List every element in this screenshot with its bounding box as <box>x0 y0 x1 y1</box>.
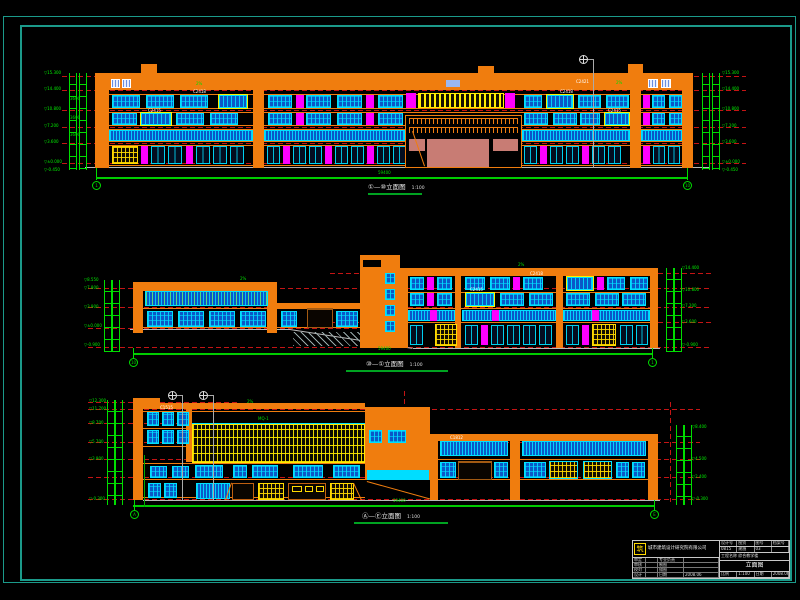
window <box>172 466 189 478</box>
vertical-line <box>144 455 145 507</box>
window <box>177 430 189 444</box>
level-marker: ▽-0.450 <box>44 168 60 172</box>
magenta-accent-panel <box>492 310 499 321</box>
annotation: 2% <box>240 277 246 281</box>
elevation-3-underline <box>354 522 448 524</box>
line <box>143 479 365 480</box>
yellow-door <box>258 483 284 500</box>
tb-cell: 0815 <box>720 547 737 552</box>
entry-door <box>653 146 665 164</box>
annotation: C1812 <box>450 436 463 440</box>
dimension-line <box>684 425 692 505</box>
yellow-framed-window <box>546 94 574 109</box>
level-marker: ▽8.550 <box>84 278 99 282</box>
tb-cell: 档案号 <box>772 541 789 546</box>
annotation: C2418 <box>560 90 573 94</box>
level-marker: ▽8.400 <box>692 425 707 429</box>
window <box>388 430 406 443</box>
line <box>95 165 693 166</box>
entry-door <box>168 146 182 164</box>
entrance-wall <box>427 139 489 167</box>
entry-door <box>668 146 680 164</box>
tb-cell: 日期 <box>658 573 684 578</box>
level-dash-line <box>62 127 746 128</box>
curtain-wall <box>192 424 365 463</box>
window <box>669 113 682 125</box>
window <box>176 113 204 125</box>
level-marker: ▽14.400 <box>44 87 61 91</box>
vertical-line <box>687 168 688 180</box>
axis-bubble: E <box>650 510 659 519</box>
level-marker: ▽10.800 <box>722 107 739 111</box>
window <box>440 462 456 478</box>
entry-door <box>566 325 579 345</box>
entry-door <box>566 146 579 164</box>
pilaster <box>648 440 658 500</box>
ground-line <box>413 348 660 349</box>
window <box>112 95 140 108</box>
ribbon-window <box>522 441 646 456</box>
dimension-line <box>104 280 112 352</box>
tb-cell: 设计 <box>633 573 646 578</box>
line <box>95 141 693 142</box>
magenta-accent-panel <box>540 146 547 164</box>
window <box>147 412 159 426</box>
roof-vent <box>446 80 460 87</box>
level-marker: ▽±0.000 <box>722 160 740 164</box>
ribbon-window <box>145 291 268 306</box>
level-marker: ▽8.700 <box>89 421 104 425</box>
entry-door <box>523 325 536 345</box>
line <box>430 459 658 460</box>
dimension-line <box>676 425 684 505</box>
window <box>333 465 360 478</box>
window <box>240 311 266 327</box>
window <box>147 311 173 327</box>
magenta-accent-panel <box>430 310 437 321</box>
yellow-framed-window <box>465 292 495 307</box>
window <box>378 113 403 125</box>
window <box>281 311 297 327</box>
annotation: 3600 <box>70 97 80 101</box>
roof-vent <box>111 79 120 88</box>
vertical-line <box>213 395 214 500</box>
louver-band <box>418 93 504 108</box>
tb-cell: 03 <box>755 547 772 552</box>
ribbon-window <box>264 130 405 141</box>
tb-cell: 比例 <box>720 572 737 577</box>
tb-cell: 建施 <box>737 547 754 552</box>
ground-line <box>130 329 290 330</box>
window <box>500 293 524 306</box>
window <box>669 95 682 108</box>
level-marker: ▽7.200 <box>682 304 697 308</box>
window <box>524 95 542 108</box>
wall-panel <box>493 139 518 151</box>
ribbon-window <box>641 130 682 141</box>
magenta-accent-panel <box>582 146 589 164</box>
yellow-door <box>435 324 457 346</box>
level-dash-line <box>62 143 746 144</box>
level-marker: ▽5.700 <box>89 440 104 444</box>
parapet-band <box>133 282 277 290</box>
window <box>607 277 625 290</box>
pilaster <box>510 440 520 500</box>
window <box>632 462 645 478</box>
line <box>133 308 277 309</box>
magenta-accent-panel <box>427 277 434 290</box>
entry-door <box>151 146 165 164</box>
level-marker: ▽10.800 <box>44 107 61 111</box>
yellow-framed-window <box>604 112 630 126</box>
level-marker: ▽10.800 <box>682 288 699 292</box>
annotation: C2421 <box>576 80 589 84</box>
company-logo: 筑 <box>634 543 646 555</box>
yellow-door <box>592 324 616 346</box>
dimension-line <box>115 400 123 505</box>
dimension-line <box>702 73 710 170</box>
annotation: C2415 <box>148 109 161 113</box>
wall-panel <box>628 64 643 73</box>
vertical-line <box>182 395 183 500</box>
window <box>268 95 292 108</box>
entry-door <box>267 146 280 164</box>
magenta-accent-panel <box>513 277 520 290</box>
elevation-2-label: ⑩—①立面图 <box>366 360 404 368</box>
level-marker: ▽14.400 <box>682 266 699 270</box>
window <box>566 293 590 306</box>
elevation-1-scale: 1:100 <box>412 186 425 191</box>
tb-cell <box>646 573 658 578</box>
window <box>410 293 424 306</box>
window <box>630 277 648 290</box>
gate-opening <box>458 461 492 480</box>
wall-panel <box>363 260 381 267</box>
magenta-accent-panel <box>592 310 599 321</box>
level-marker: ▽3.600 <box>44 140 59 144</box>
window <box>490 277 510 290</box>
axis-marker <box>168 391 177 400</box>
axis-bubble: 10 <box>683 181 692 190</box>
level-marker: ▽3.600 <box>722 140 737 144</box>
entry-door <box>620 325 633 345</box>
elevation-1-label: ①—⑩立面图 <box>368 183 406 191</box>
window <box>378 95 403 108</box>
entry-door <box>539 325 552 345</box>
window <box>385 289 395 300</box>
pilaster <box>650 276 658 348</box>
window <box>306 95 331 108</box>
annotation: 59400 <box>393 499 406 503</box>
window <box>252 465 278 478</box>
window <box>652 95 665 108</box>
level-marker: ▽-0.300 <box>692 497 708 501</box>
canopy <box>367 470 429 480</box>
title-block-left: 筑 城市建筑设计研究院有限公司 审定 专业负责 审核 制图 校对 描图 设计 日… <box>633 541 720 578</box>
annotation: 59400 <box>378 347 391 351</box>
ribbon-window <box>440 441 508 456</box>
magenta-accent-panel <box>427 293 434 306</box>
window <box>622 293 646 306</box>
yellow-framed-window <box>566 276 594 291</box>
dimension-line <box>712 73 720 170</box>
annotation: C2418 <box>530 272 543 276</box>
annotation: C2418 <box>193 90 206 94</box>
window <box>595 293 619 306</box>
magenta-accent-panel <box>296 95 304 108</box>
window <box>606 95 629 108</box>
annotation: 2% <box>196 82 202 86</box>
elevation-3-scale: 1:100 <box>407 515 420 520</box>
window <box>523 277 543 290</box>
window <box>437 277 452 290</box>
axis-line <box>133 505 655 507</box>
level-marker: ▽7.200 <box>44 124 59 128</box>
roof-vent <box>122 79 131 88</box>
entry-door <box>335 146 348 164</box>
parapet-band <box>95 73 693 90</box>
level-marker: ▽-0.450 <box>722 168 738 172</box>
wall-panel <box>141 64 157 73</box>
magenta-accent-panel <box>406 93 416 108</box>
magenta-accent-panel <box>643 95 650 108</box>
level-marker: ▽7.800 <box>84 286 99 290</box>
magenta-accent-panel <box>366 113 374 125</box>
entry-door <box>608 146 621 164</box>
magenta-accent-panel <box>186 146 193 164</box>
axis-line <box>133 353 652 355</box>
window <box>195 465 223 478</box>
drawing-title: 立面图 <box>720 561 789 572</box>
entry-door <box>465 325 478 345</box>
vertical-line <box>134 500 135 510</box>
tb-cell: 1:100 <box>737 572 754 577</box>
magenta-accent-panel <box>283 146 290 164</box>
entry-door <box>507 325 520 345</box>
entry-door <box>550 146 563 164</box>
level-dash-line <box>62 110 746 111</box>
roof-vent <box>661 79 671 88</box>
annotation: 2% <box>247 400 253 404</box>
window <box>178 311 204 327</box>
entry-door <box>230 146 244 164</box>
dimension-line <box>107 400 115 505</box>
level-marker: ▽12.300 <box>89 399 106 403</box>
title-block: 筑 城市建筑设计研究院有限公司 审定 专业负责 审核 制图 校对 描图 设计 日… <box>632 540 790 579</box>
project-name-row: 工程名称 综合教学楼 <box>720 553 789 561</box>
window <box>524 462 546 478</box>
window <box>268 113 292 125</box>
line <box>133 327 277 328</box>
magenta-accent-panel <box>141 146 148 164</box>
window <box>162 412 174 426</box>
window <box>209 311 235 327</box>
tb-cell: 2008.06 <box>772 572 789 577</box>
annotation: 59400 <box>378 171 391 175</box>
pilaster <box>133 409 143 500</box>
line <box>95 108 693 109</box>
entry-door <box>377 146 390 164</box>
signature-table: 审定 专业负责 审核 制图 校对 描图 设计 日期 2008.06 <box>633 558 719 578</box>
window <box>148 483 161 498</box>
yellow-grid-window <box>583 461 612 479</box>
entry-door <box>213 146 227 164</box>
yellow-door <box>112 146 138 164</box>
wall-panel <box>316 486 324 492</box>
entry-door <box>491 325 504 345</box>
tb-cell: 图别 <box>737 541 754 546</box>
window <box>337 113 362 125</box>
axis-marker <box>199 391 208 400</box>
entry-door <box>309 146 322 164</box>
level-marker: ▽-0.900 <box>84 343 100 347</box>
vertical-line <box>654 500 655 510</box>
vertical-line <box>133 348 134 358</box>
magenta-accent-panel <box>505 93 515 108</box>
entry-door <box>524 146 537 164</box>
yellow-framed-window <box>218 94 248 109</box>
window <box>112 113 137 125</box>
window <box>162 430 174 444</box>
dimension-line <box>112 280 120 352</box>
entry-door <box>636 325 648 345</box>
window <box>385 321 395 332</box>
window <box>524 113 548 125</box>
window <box>410 277 424 290</box>
line <box>400 308 658 309</box>
axis-marker <box>579 55 588 64</box>
window <box>616 462 629 478</box>
elevation-2-underline <box>346 370 448 372</box>
level-marker: ▽3.600 <box>682 320 697 324</box>
window <box>146 95 174 108</box>
level-marker: ▽-0.300 <box>89 497 105 501</box>
vertical-line <box>652 348 653 358</box>
line <box>143 463 365 464</box>
window <box>652 113 665 125</box>
window <box>180 95 208 108</box>
window <box>580 113 600 125</box>
wall-panel <box>305 486 313 492</box>
yellow-door <box>330 483 354 500</box>
window <box>336 311 358 327</box>
window <box>293 465 323 478</box>
axis-bubble: 10 <box>129 358 138 367</box>
level-marker: ▽7.200 <box>722 124 737 128</box>
tb-cell: 2008.06 <box>684 573 719 578</box>
magenta-accent-panel <box>296 113 304 125</box>
ribbon-window <box>563 310 650 321</box>
level-marker: ▽15.300 <box>44 71 61 75</box>
magenta-accent-panel <box>643 113 650 125</box>
title-block-right: 设计号 图别 图号 档案号 0815 建施 03 工程名称 综合教学楼 立面图 … <box>720 541 789 578</box>
tb-cell: 图号 <box>755 541 772 546</box>
window <box>337 95 362 108</box>
annotation: C1515 <box>160 406 173 410</box>
line <box>400 322 658 323</box>
gate-opening <box>307 308 333 328</box>
storefront <box>232 483 254 500</box>
magenta-accent-panel <box>597 277 604 290</box>
window <box>385 273 395 284</box>
dimension-line <box>666 268 674 352</box>
level-marker: ▽3.900 <box>89 457 104 461</box>
ground-line <box>85 167 710 168</box>
yellow-framed-window <box>140 112 172 126</box>
annotation: C2415 <box>608 109 621 113</box>
window <box>578 95 601 108</box>
magenta-accent-panel <box>582 325 589 345</box>
vertical-dash-line <box>670 402 671 502</box>
annotation: 3600 <box>70 133 80 137</box>
tb-bottom-row: 比例 1:100 日期 2008.06 <box>720 572 789 578</box>
elevation-3-title: Ⓐ—Ⓔ立面图1:100 <box>362 513 420 521</box>
dimension-line <box>69 73 77 170</box>
elevation-1-underline <box>368 193 422 195</box>
window <box>437 293 452 306</box>
dimension-line <box>674 268 682 352</box>
window <box>369 430 382 443</box>
magenta-accent-panel <box>325 146 332 164</box>
dimension-line <box>79 73 87 170</box>
annotation: C2415 <box>470 288 483 292</box>
level-marker: ▽±0.000 <box>84 324 102 328</box>
elevation-1-title: ①—⑩立面图1:100 <box>368 184 425 192</box>
window <box>177 412 189 426</box>
window <box>553 113 577 125</box>
entry-door <box>196 146 210 164</box>
elevation-3-label: Ⓐ—Ⓔ立面图 <box>362 512 401 520</box>
roof-vent <box>648 79 658 88</box>
pilaster <box>430 440 438 500</box>
axis-bubble: 1 <box>648 358 657 367</box>
level-marker: ▽2.400 <box>692 475 707 479</box>
window <box>494 462 508 478</box>
window <box>385 305 395 316</box>
window <box>210 113 238 125</box>
railing <box>409 118 518 124</box>
window <box>164 483 177 498</box>
tb-cell: 设计号 <box>720 541 737 546</box>
cad-drawing-canvas: ▽15.300▽14.400▽10.800▽7.200▽3.600▽±0.000… <box>0 0 800 600</box>
entry-door <box>410 325 423 345</box>
annotation: 3600 <box>70 116 80 120</box>
pilaster <box>400 276 408 348</box>
annotation: 2% <box>616 81 622 85</box>
axis-bubble: 1 <box>92 181 101 190</box>
level-marker: ▽15.300 <box>722 71 739 75</box>
annotation: MQ-1 <box>258 417 269 421</box>
window <box>306 113 331 125</box>
magenta-accent-panel <box>481 325 488 345</box>
ribbon-window <box>109 130 253 141</box>
pilaster <box>556 276 563 348</box>
level-marker: ▽±0.000 <box>44 160 62 164</box>
elevation-2-scale: 1:100 <box>410 363 423 368</box>
level-marker: ▽-0.900 <box>682 343 698 347</box>
window <box>233 465 247 478</box>
wall-panel <box>478 66 494 74</box>
level-marker: ▽4.500 <box>692 457 707 461</box>
axis-line <box>96 177 687 179</box>
elevation-2-title: ⑩—①立面图1:100 <box>366 361 423 369</box>
level-marker: ▽11.700 <box>89 407 106 411</box>
annotation: 2% <box>518 263 524 267</box>
window <box>150 466 167 478</box>
level-marker: ▽3.900 <box>84 305 99 309</box>
tb-cell: 日期 <box>755 572 772 577</box>
level-marker: ▽14.400 <box>722 87 739 91</box>
